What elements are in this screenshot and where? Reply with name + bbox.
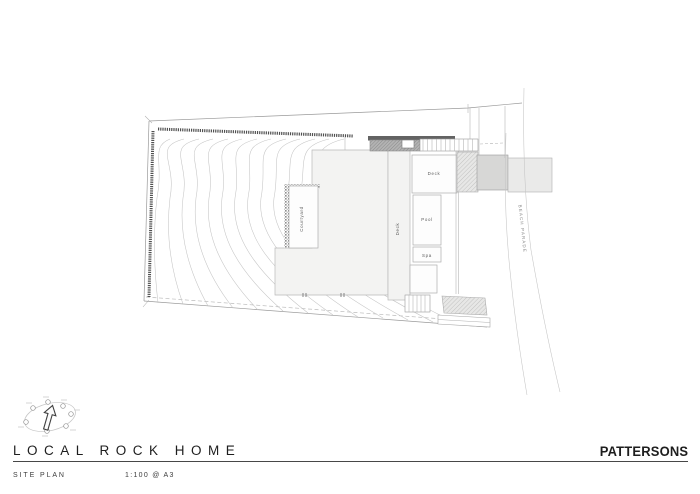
deck-room-label: Deck: [428, 171, 441, 176]
pool-label: Pool: [421, 217, 433, 222]
road: [505, 88, 560, 395]
east-hatch-strip: [457, 152, 478, 192]
lower-room: [410, 265, 437, 293]
street-name-label: BEACH PARADE: [517, 204, 527, 253]
drawing-sheet: Courtyard Deck Deck Pool Spa BEACH PARAD…: [0, 0, 700, 494]
lower-hatch-pad: [442, 296, 487, 315]
crossing-pad: [508, 158, 552, 192]
scale-label: 1:100 @ A3: [125, 472, 175, 479]
rooflight: [402, 140, 414, 148]
firm-logo: PATTERSONS: [599, 444, 688, 459]
building: [275, 106, 552, 327]
walkway-steps: [420, 139, 503, 151]
drawing-title: SITE PLAN: [13, 472, 66, 479]
courtyard-wall: [284, 188, 289, 248]
spa-label: Spa: [422, 253, 432, 258]
deck-strip-label: Deck: [395, 222, 400, 235]
project-title: LOCAL ROCK HOME: [13, 443, 241, 458]
titleblock-rule: [13, 461, 688, 462]
north-arrow-icon: [18, 397, 80, 436]
site-plan-canvas: Courtyard Deck Deck Pool Spa BEACH PARAD…: [0, 0, 700, 494]
driveway-pad: [477, 155, 508, 190]
lower-stairs: [405, 295, 430, 312]
courtyard-label: Courtyard: [299, 206, 304, 232]
